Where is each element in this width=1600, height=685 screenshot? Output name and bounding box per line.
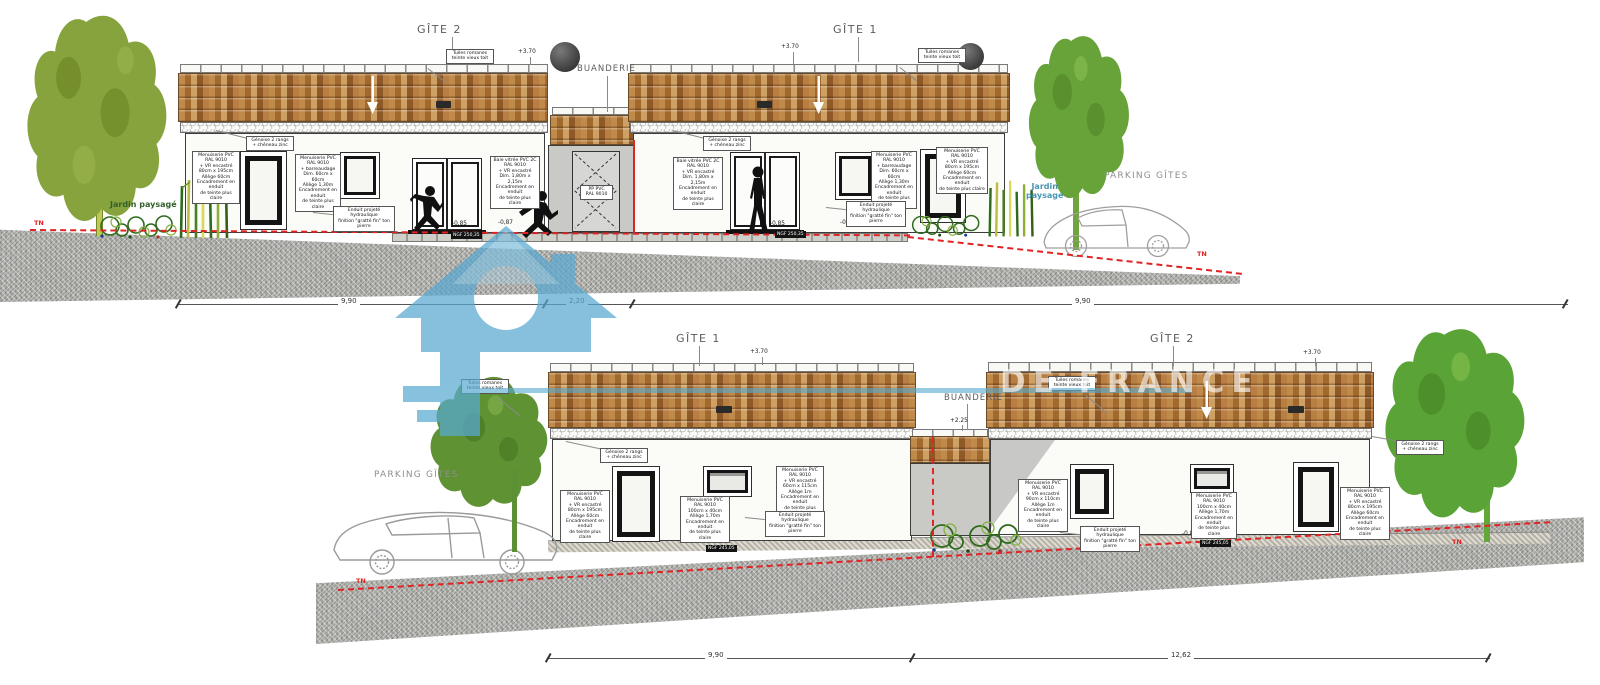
title-buanderie: BUANDERIE [944, 393, 1003, 403]
dim-label: 9,90 [1072, 297, 1094, 305]
roof-ridge-caps [630, 64, 1008, 73]
annotation-window: Menuiserie PVC RAL 9010 + VR encastré 80… [936, 147, 988, 194]
parking-gites-label: PARKING GÎTES [1104, 171, 1189, 181]
leader-line [530, 57, 531, 65]
title-gite1: GÎTE 1 [676, 332, 721, 345]
ngf-level-box: NGF 245,05 [706, 545, 737, 552]
tn-label: TN [1197, 250, 1207, 258]
annotation-genoise: Génoise 2 rangs + chéneau zinc [600, 448, 648, 463]
car-outline [1038, 198, 1194, 260]
genoise-band [180, 122, 548, 133]
window-tall [240, 151, 287, 230]
leader-line [967, 404, 968, 430]
ngf-level-box: NGF 250,35 [775, 231, 806, 238]
annotation-tuiles: Tuiles romanes teinte vieux toit [446, 49, 494, 64]
key-house-watermark [395, 226, 617, 440]
leader-line [793, 52, 794, 64]
roof-tiles [550, 115, 634, 145]
level-ridge: +3.70 [750, 349, 768, 355]
annotation-window: Menuiserie PVC RAL 9010 + VR encastré 80… [560, 490, 610, 543]
dim-label: 9,90 [338, 297, 360, 305]
window-small [340, 152, 380, 199]
annotation-baie: Baie vitrée PVC 2C RAL 9010 + VR encastr… [673, 157, 723, 210]
title-gite2: GÎTE 2 [1150, 332, 1195, 345]
window-pane [245, 156, 282, 225]
window-mid [1070, 464, 1114, 519]
dim-label: 12,62 [1168, 651, 1194, 659]
roof-slope-arrow [366, 76, 380, 116]
dimension-line [178, 304, 1568, 305]
annotation-window: Menuiserie PVC RAL 9010 + VR encastré 90… [1018, 479, 1068, 532]
dimension-line [548, 658, 1490, 659]
window-wide-small [1190, 464, 1234, 493]
window-small [835, 152, 875, 200]
level-buanderie: +2.25 [950, 418, 968, 424]
leader-line [607, 76, 608, 112]
leader-line [962, 425, 963, 431]
annotation-genoise: Génoise 2 rangs + chéneau zinc [246, 136, 294, 151]
watermark-text: DE FRANCE [1000, 364, 1260, 400]
ngf-level-box: NGF 245,05 [1200, 540, 1231, 547]
annotation-window: Menuiserie PVC RAL 9010 + barreaudage Di… [295, 154, 341, 212]
annotation-enduit: Enduit projeté hydraulique finition "gra… [846, 201, 906, 227]
annotation-enduit: Enduit projeté hydraulique finition "gra… [765, 511, 825, 537]
roof-ridge-caps [552, 107, 632, 115]
roof-tiles [910, 436, 990, 463]
roof-ridge-caps [180, 64, 548, 73]
shrub-scribbles [908, 208, 988, 240]
genoise-band [988, 428, 1372, 439]
dim-tick [1485, 653, 1491, 662]
door-pane [451, 162, 479, 227]
annotation-enduit: Enduit projeté hydraulique finition "gra… [1080, 526, 1140, 552]
window-pane [1298, 467, 1334, 527]
roof-note-smudge [716, 406, 732, 413]
level-mark: -0,85 [770, 221, 785, 227]
window-wide-small [703, 466, 752, 497]
genoise-band [630, 122, 1008, 133]
shrub-scribbles [96, 210, 182, 240]
annotation-genoise: Génoise 2 rangs + chéneau zinc [1396, 440, 1444, 455]
door-pp-note: PP PVC RAL 9010 [580, 185, 613, 200]
limit-line-red-dashed [932, 437, 934, 557]
window-tall [612, 466, 660, 542]
dim-label: 9,90 [705, 651, 727, 659]
annotation-window: Menuiserie PVC RAL 9010 100cm x 40cm All… [680, 496, 730, 543]
door-leaf [447, 158, 482, 230]
tree [22, 8, 172, 226]
window-pane [1075, 469, 1109, 514]
title-gite1: GÎTE 1 [833, 23, 878, 36]
window-pane [707, 470, 748, 493]
window-pane [839, 156, 871, 196]
leader-line [699, 346, 700, 366]
annotation-window: Menuiserie PVC RAL 9010 + VR encastré 80… [192, 151, 240, 204]
annotation-genoise: Génoise 2 rangs + chéneau zinc [703, 136, 751, 151]
buanderie-door: PP PVC RAL 9010 [572, 151, 620, 232]
jardin-paysage-label: Jardin paysagé [1026, 182, 1063, 200]
level-ridge: +3.70 [781, 44, 799, 50]
tn-label: TN [356, 577, 366, 585]
tree [1380, 322, 1530, 522]
parking-gites-label: PARKING GÎTES [374, 470, 459, 480]
jardin-paysage-label: Jardin paysagé [110, 200, 177, 209]
leader-line [1173, 346, 1174, 366]
leader-line [762, 357, 763, 365]
tn-label: TN [1452, 538, 1462, 546]
annotation-baie: Baie vitrée PVC 2C RAL 9010 + VR encastr… [490, 156, 540, 209]
title-gite2: GÎTE 2 [417, 23, 462, 36]
limit-line-red [633, 140, 635, 233]
annotation-enduit: Enduit projeté hydraulique finition "gra… [333, 206, 395, 232]
level-ridge: +3.70 [1303, 350, 1321, 356]
roof-tiles [178, 73, 548, 122]
shrub-scribbles [928, 516, 1024, 556]
roof-note-smudge [1288, 406, 1304, 413]
window-pane [617, 471, 655, 537]
roof-note-smudge [757, 101, 772, 108]
annotation-tuiles: Tuiles romanes teinte vieux toit [918, 48, 966, 63]
window-pane [1194, 468, 1230, 489]
sphere-ornament [550, 42, 580, 72]
level-ridge: +3.70 [518, 49, 536, 55]
tree-trunk [512, 470, 517, 552]
window-pane [344, 156, 376, 195]
leader-line [1315, 358, 1316, 366]
tn-label: TN [34, 219, 44, 227]
leader-line [858, 37, 859, 62]
title-buanderie: BUANDERIE [577, 64, 636, 74]
roof-note-smudge [436, 101, 451, 108]
window-tall [1293, 462, 1339, 532]
elevation-drawing-sheet: TN TN PP PVC RAL 9010 [0, 0, 1600, 685]
annotation-window: Menuiserie PVC RAL 9010 + VR encastré 80… [1340, 487, 1390, 540]
roof-slope-arrow [812, 76, 826, 116]
annotation-window: Menuiserie PVC RAL 9010 100cm x 40cm All… [1191, 492, 1237, 539]
